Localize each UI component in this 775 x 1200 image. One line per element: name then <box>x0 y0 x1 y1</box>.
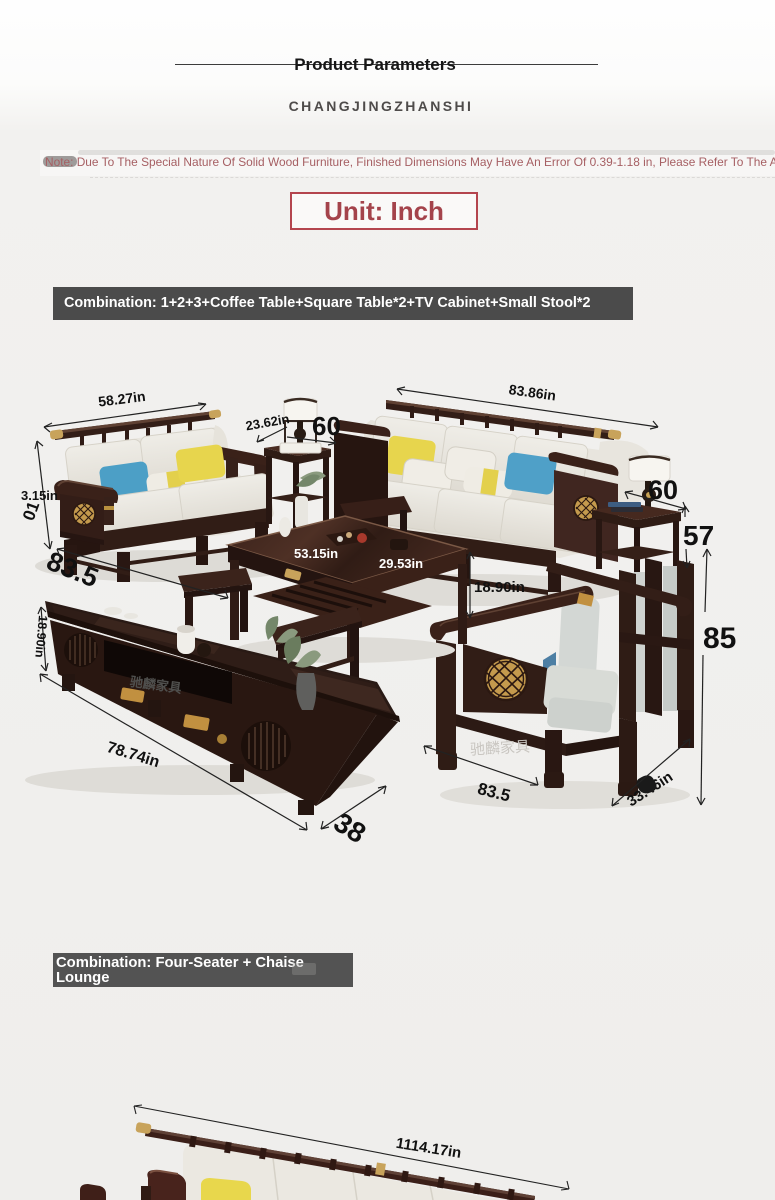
svg-text:85: 85 <box>703 622 736 655</box>
svg-text:驰麟家具: 驰麟家具 <box>470 738 531 758</box>
svg-text:29.53in: 29.53in <box>379 556 423 571</box>
svg-text:53.15in: 53.15in <box>294 546 338 561</box>
svg-text:18.90in: 18.90in <box>474 579 525 596</box>
svg-text:23.62in: 23.62in <box>244 411 290 433</box>
svg-text:60: 60 <box>648 475 678 505</box>
svg-text:18.90in: 18.90in <box>32 615 50 658</box>
svg-text:58.27in: 58.27in <box>97 388 146 410</box>
svg-text:60: 60 <box>312 411 341 441</box>
svg-text:57: 57 <box>683 520 714 551</box>
svg-text:38: 38 <box>329 806 372 849</box>
svg-text:83.86in: 83.86in <box>508 381 557 403</box>
